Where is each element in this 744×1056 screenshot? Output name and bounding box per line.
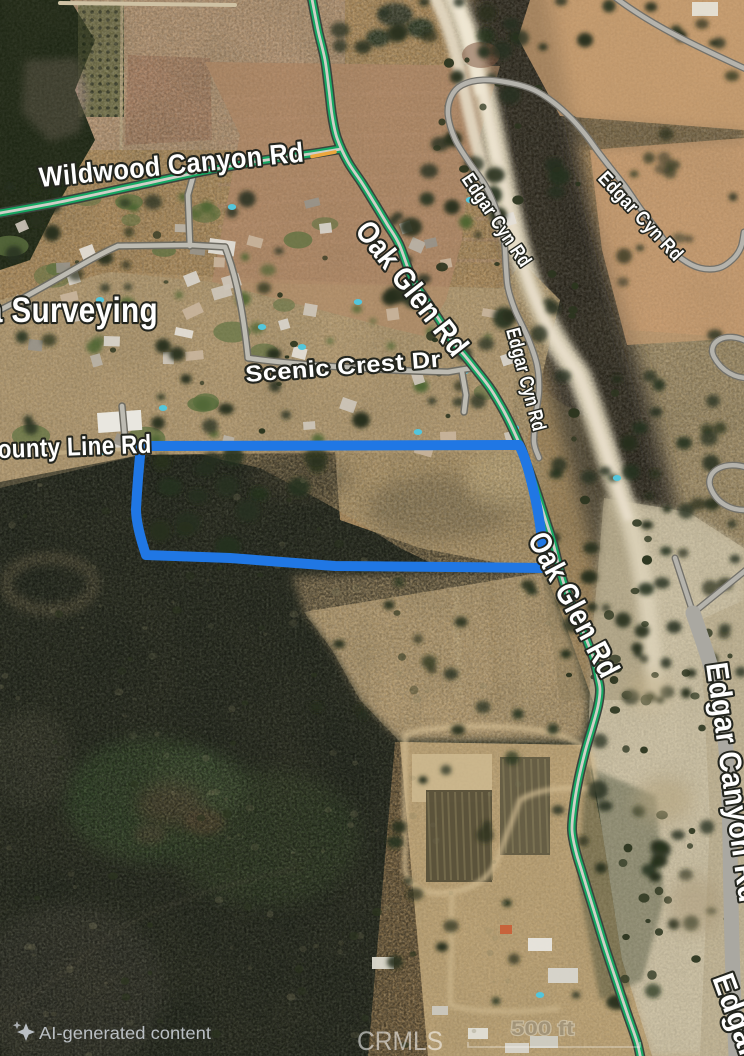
svg-text:500 ft: 500 ft: [511, 1019, 575, 1040]
svg-text:AI-generated content: AI-generated content: [39, 1023, 211, 1043]
svg-text:a Surveying: a Surveying: [0, 291, 158, 330]
svg-text:ounty Line Rd: ounty Line Rd: [0, 429, 152, 464]
svg-text:CRMLS: CRMLS: [357, 1026, 443, 1056]
